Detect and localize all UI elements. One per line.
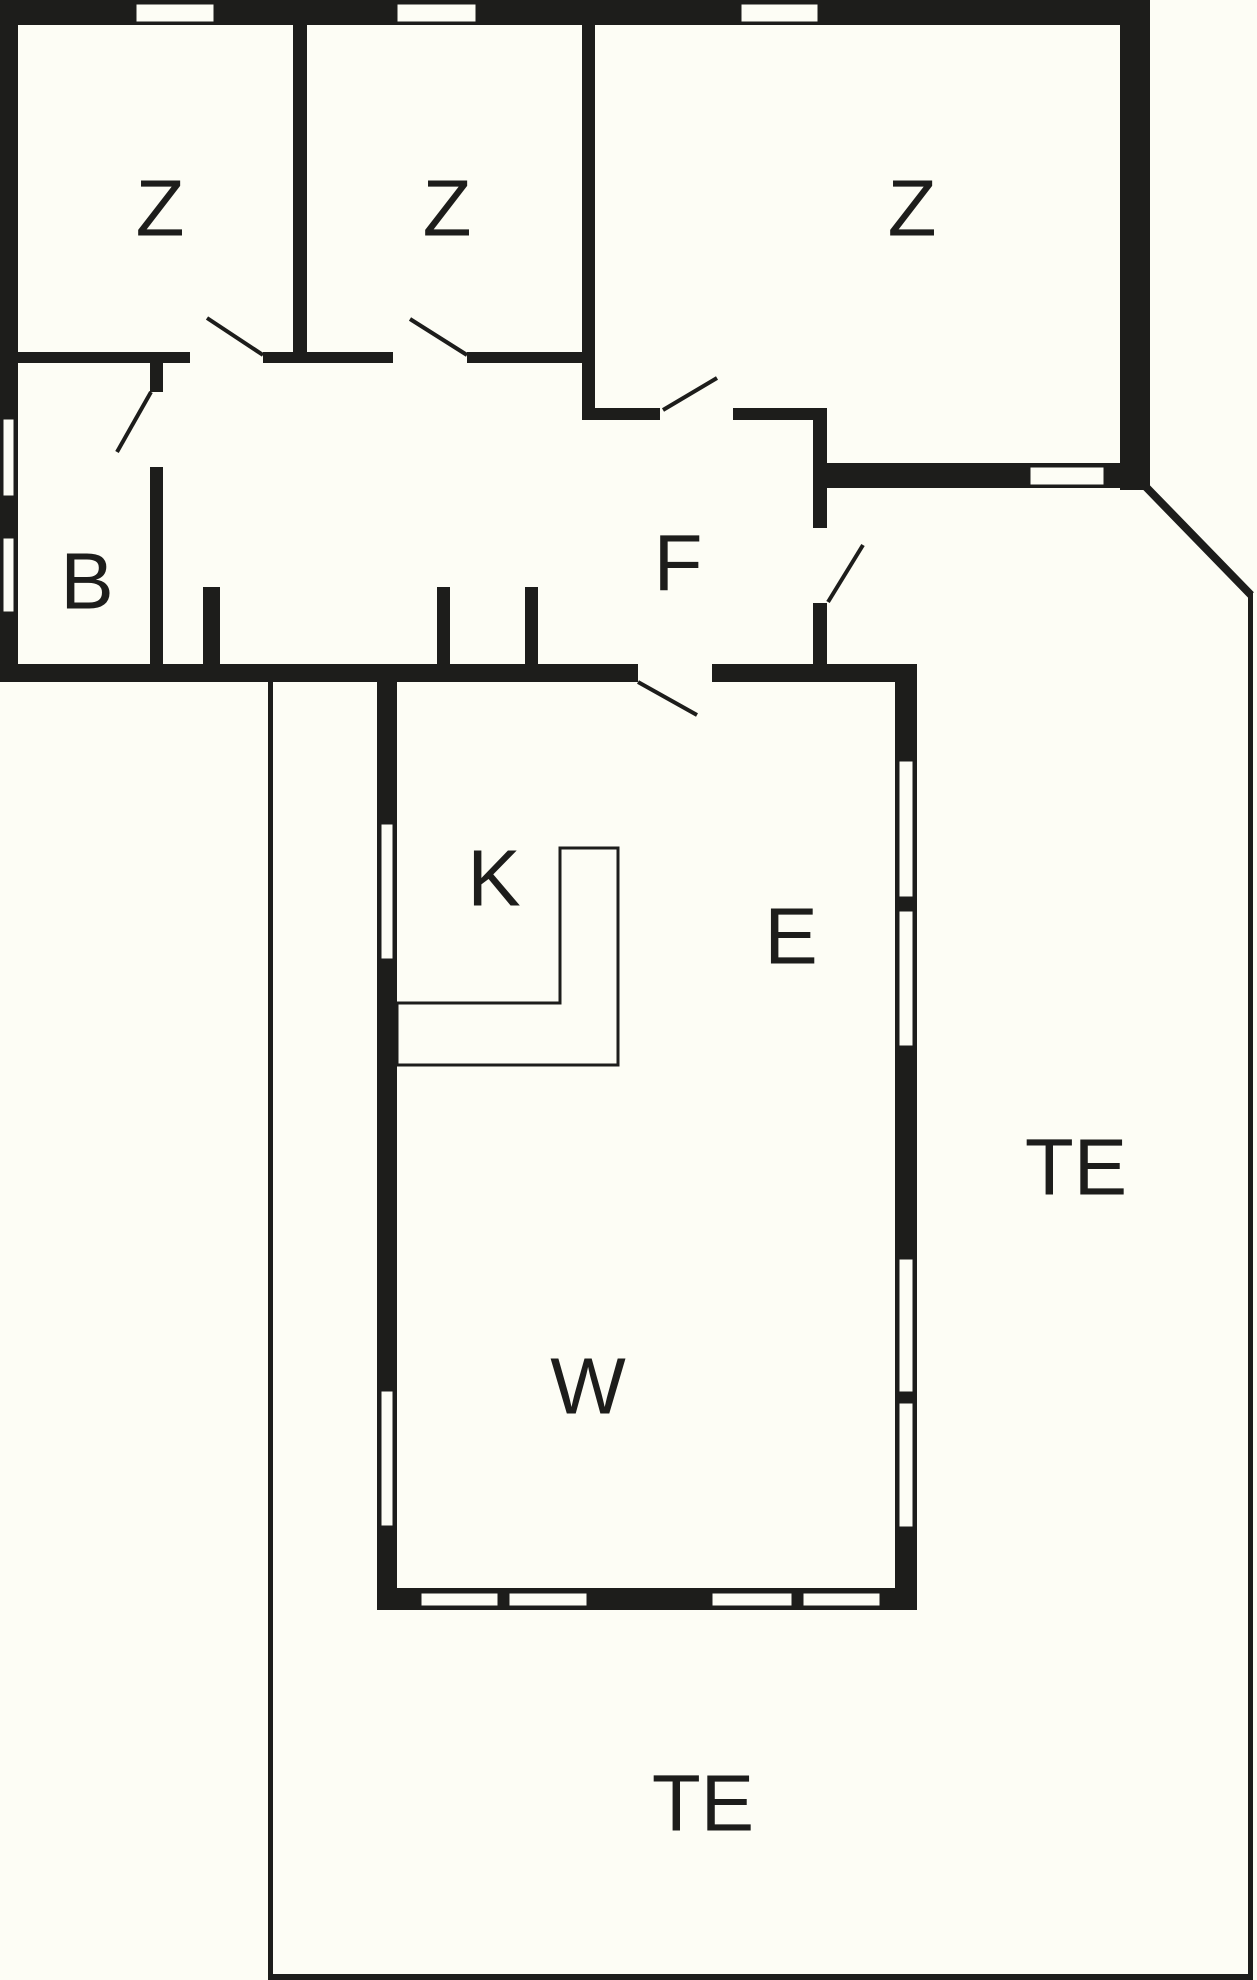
- window: [420, 1592, 499, 1607]
- room-label-hallway: F: [654, 519, 703, 608]
- room-label-bathroom: B: [60, 537, 113, 626]
- window: [2, 418, 15, 497]
- wall-segment: [733, 408, 827, 420]
- room-label-bedroom-1: Z: [136, 164, 185, 253]
- wall-segment: [203, 587, 220, 665]
- window: [898, 1402, 914, 1528]
- wall-segment: [582, 25, 595, 420]
- wall-segment: [813, 420, 827, 528]
- terrace-edge-line: [1248, 592, 1253, 1980]
- wall-segment: [150, 467, 163, 682]
- wall-segment: [437, 587, 450, 682]
- wall-segment: [293, 25, 307, 352]
- floorplan-canvas: ZZZBFKEWTETE: [0, 0, 1257, 1980]
- window: [802, 1592, 881, 1607]
- window: [1029, 466, 1105, 486]
- room-label-terrace-east: TE: [1025, 1123, 1127, 1212]
- wall-segment: [525, 587, 538, 665]
- window: [380, 823, 394, 960]
- wall-segment: [0, 664, 638, 682]
- window: [2, 537, 15, 613]
- wall-segment: [263, 352, 393, 363]
- room-label-kitchen: K: [467, 834, 520, 923]
- window: [396, 3, 477, 23]
- wall-segment: [582, 408, 660, 420]
- room-label-bedroom-2: Z: [423, 164, 472, 253]
- room-label-bedroom-3: Z: [888, 164, 937, 253]
- wall-segment: [1120, 0, 1150, 490]
- window: [740, 3, 819, 23]
- window: [380, 1390, 394, 1527]
- room-label-dining-area: E: [764, 892, 817, 981]
- terrace-edge-line: [268, 1974, 1253, 1980]
- terrace-edge-line: [268, 682, 273, 1980]
- floorplan-background: [0, 0, 1257, 1980]
- window: [898, 1258, 914, 1393]
- floorplan-svg: ZZZBFKEWTETE: [0, 0, 1257, 1980]
- wall-segment: [150, 363, 163, 392]
- window: [898, 910, 914, 1047]
- wall-segment: [18, 352, 190, 363]
- window: [711, 1592, 793, 1607]
- room-label-living-room: W: [550, 1342, 626, 1431]
- wall-segment: [712, 664, 917, 682]
- wall-segment: [467, 352, 583, 363]
- room-label-terrace-south: TE: [652, 1759, 754, 1848]
- window: [898, 760, 914, 898]
- window: [508, 1592, 588, 1607]
- window: [135, 3, 215, 23]
